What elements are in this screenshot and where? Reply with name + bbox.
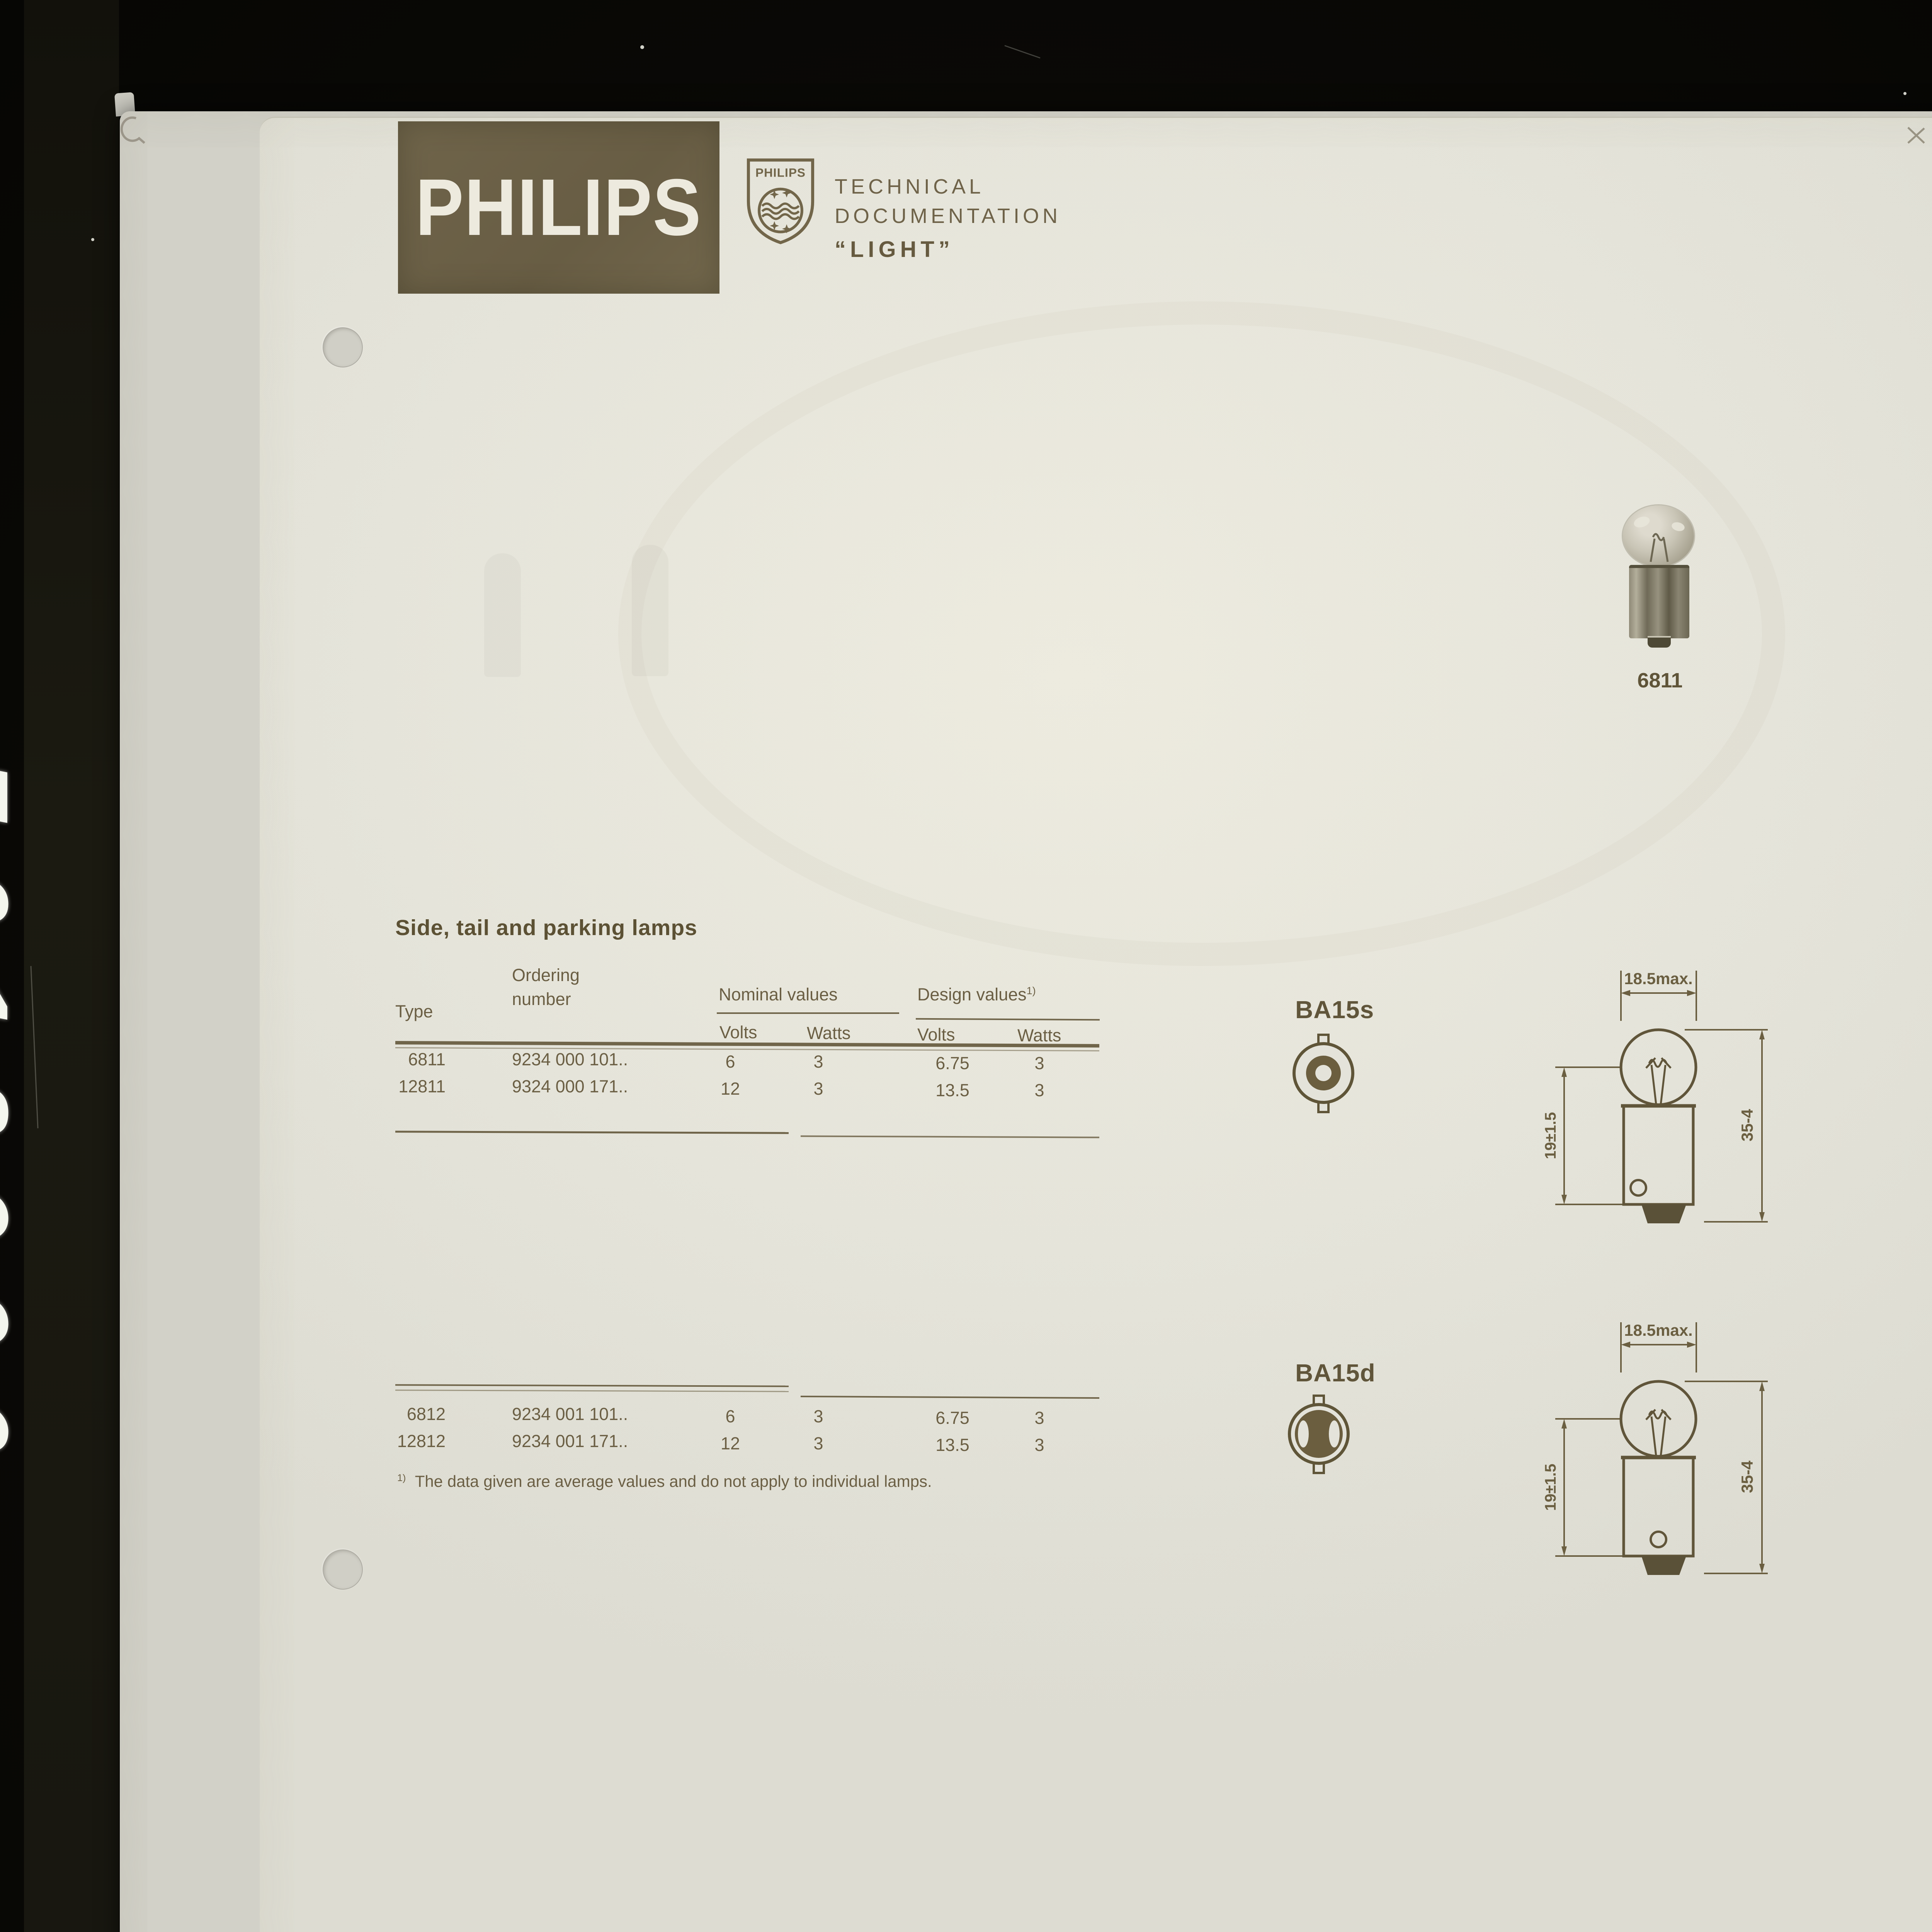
col-header-ordering-2: number: [512, 989, 571, 1009]
lamp-photo-base: [1629, 565, 1689, 638]
lamp-dimension-drawing-ba15d: 18.5max. 19±1.5 35-4: [1519, 1299, 1789, 1597]
punch-hole: [323, 327, 363, 367]
ba15s-base-icon: [1289, 1032, 1358, 1114]
table-row-design-watts: 3: [1019, 1408, 1060, 1428]
ba15d-base-icon: [1284, 1393, 1353, 1475]
section-heading: Side, tail and parking lamps: [395, 915, 697, 940]
table-row-ordering: 9234 001 101..: [512, 1404, 628, 1424]
sub-header-volts: Volts: [917, 1025, 955, 1045]
shield-philips-text: PHILIPS: [755, 166, 806, 180]
table-row-design-volts: 6.75: [927, 1053, 978, 1073]
dim-lcl-label: 19±1.5: [1542, 1464, 1559, 1511]
footnote: 1) The data given are average values and…: [397, 1472, 932, 1491]
table-row-ordering: 9234 000 101..: [512, 1049, 628, 1070]
table-row-design-watts: 3: [1019, 1080, 1060, 1100]
dim-width-label: 18.5max.: [1624, 969, 1692, 988]
waves-icon: [762, 204, 799, 219]
table-row-nominal-watts: 3: [798, 1079, 838, 1099]
group-header-nominal: Nominal values: [719, 985, 838, 1005]
table-row-nominal-watts: 3: [798, 1052, 838, 1072]
photo-filament-icon: [1638, 529, 1685, 567]
design-footnote-marker: 1): [1027, 985, 1036, 997]
film-strip: [24, 0, 119, 1932]
header-line-light: “LIGHT”: [835, 236, 954, 262]
header-line-technical: TECHNICAL: [835, 175, 984, 199]
dim-height-label: 35-4: [1738, 1109, 1756, 1141]
lamp-dimension-drawing-ba15s: 18.5max. 19±1.5 35-4: [1519, 947, 1789, 1245]
cap-label-ba15s: BA15s: [1295, 995, 1374, 1024]
cap-label-ba15d: BA15d: [1295, 1359, 1376, 1387]
col-header-ordering-1: Ordering: [512, 965, 580, 985]
table-row-nominal-volts: 12: [710, 1434, 750, 1454]
group-header-design-text: Design values: [917, 985, 1027, 1004]
philips-shield-emblem: PHILIPS: [744, 156, 817, 246]
table-row-design-watts: 3: [1019, 1053, 1060, 1073]
dim-width-label: 18.5max.: [1624, 1321, 1692, 1339]
header-line-documentation: DOCUMENTATION: [835, 204, 1061, 228]
table-row-nominal-volts: 6: [710, 1052, 750, 1072]
col-header-type: Type: [395, 1002, 433, 1022]
table-row-ordering: 9324 000 171..: [512, 1077, 628, 1097]
ghost-bulb-artifact: [632, 545, 668, 676]
footnote-marker: 1): [397, 1473, 406, 1483]
ghost-bulb-artifact: [484, 553, 521, 677]
punch-hole: [323, 1549, 363, 1590]
table-row-type: 6812: [391, 1404, 446, 1424]
lamp-photo-contact: [1648, 636, 1671, 648]
table-row-design-volts: 13.5: [927, 1080, 978, 1100]
dim-height-label: 35-4: [1738, 1460, 1756, 1493]
table-row-design-volts: 6.75: [927, 1408, 978, 1428]
table-row-nominal-watts: 3: [798, 1434, 838, 1454]
sub-header-volts: Volts: [719, 1022, 757, 1043]
lamp-photo-caption: 6811: [1621, 668, 1699, 692]
philips-logo-box: PHILIPS: [398, 121, 719, 294]
table-row-nominal-volts: 6: [710, 1406, 750, 1427]
table-row-type: 6811: [391, 1049, 446, 1070]
group-header-design: Design values1): [917, 985, 1036, 1005]
sub-header-watts: Watts: [1017, 1026, 1061, 1046]
nominal-underline: [717, 1012, 899, 1014]
table-row-ordering: 9234 001 171..: [512, 1431, 628, 1451]
sub-header-watts: Watts: [807, 1023, 850, 1043]
table-row-design-volts: 13.5: [927, 1435, 978, 1455]
table-row-type: 12811: [391, 1077, 446, 1097]
table-row-nominal-volts: 12: [710, 1079, 750, 1099]
film-negative-photo: 7012996 PHILIPS PHILIPS TECHNICAL DOCUME…: [0, 0, 1932, 1932]
table-row-type: 12812: [391, 1431, 446, 1451]
table-row-nominal-watts: 3: [798, 1406, 838, 1427]
dim-lcl-label: 19±1.5: [1542, 1112, 1559, 1159]
table-row-design-watts: 3: [1019, 1435, 1060, 1455]
philips-logo-text: PHILIPS: [416, 162, 702, 254]
footnote-text: The data given are average values and do…: [415, 1472, 932, 1490]
